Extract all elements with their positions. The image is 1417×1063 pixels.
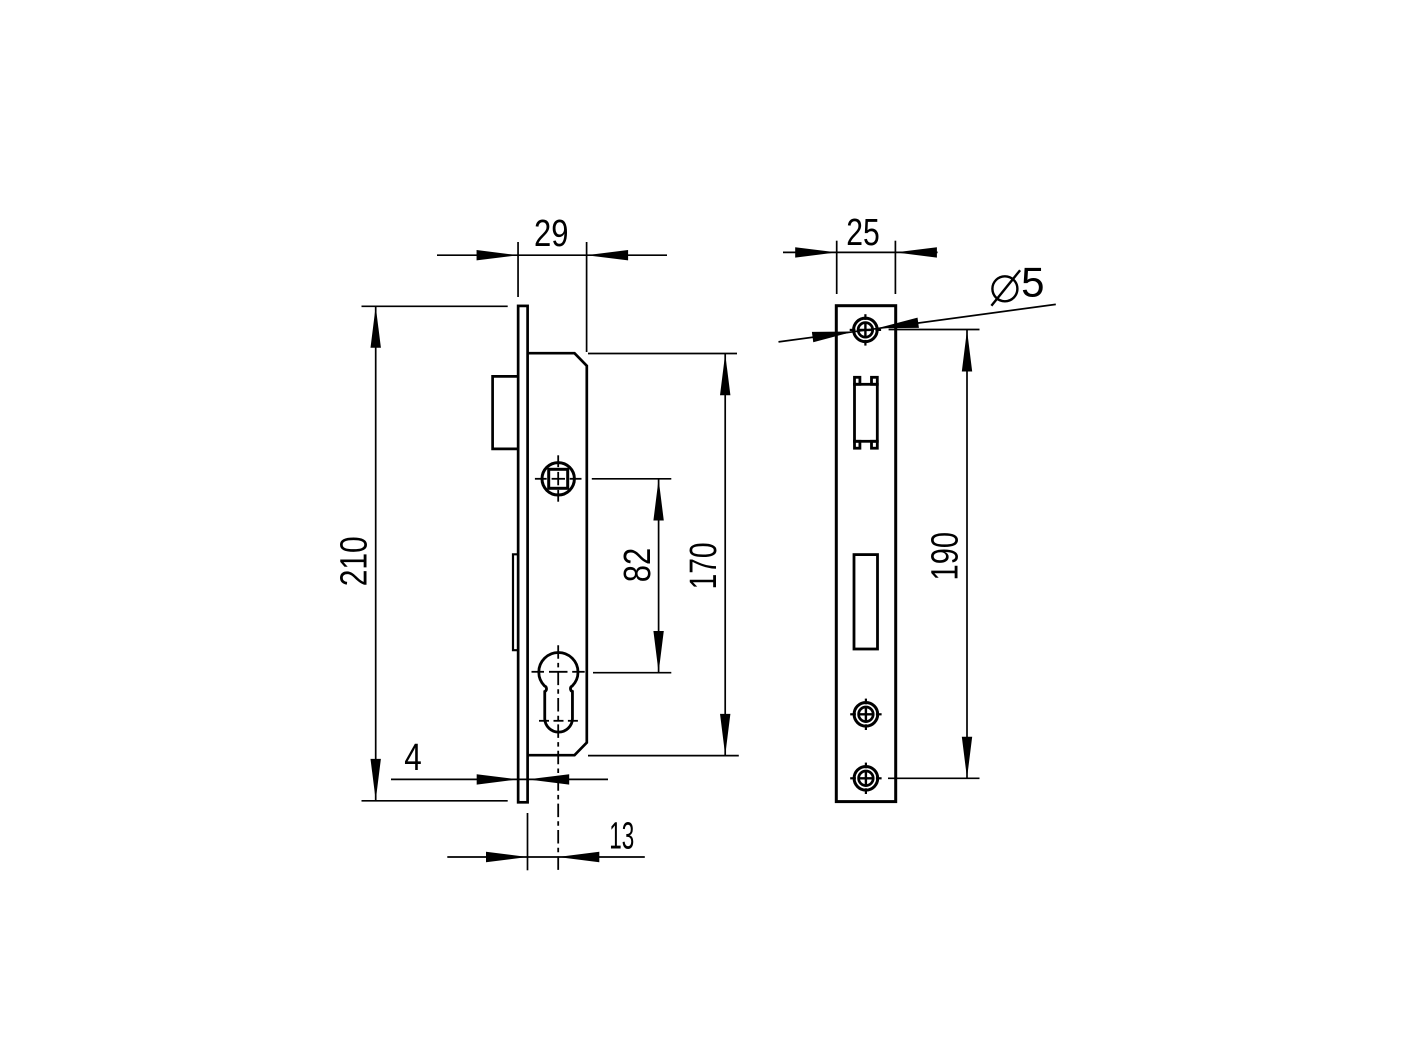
svg-text:4: 4 bbox=[404, 737, 422, 779]
svg-text:13: 13 bbox=[609, 816, 634, 858]
svg-text:210: 210 bbox=[334, 536, 376, 586]
svg-text:82: 82 bbox=[617, 548, 659, 583]
svg-text:29: 29 bbox=[534, 213, 569, 255]
svg-text:190: 190 bbox=[925, 532, 967, 581]
svg-text:170: 170 bbox=[683, 542, 725, 589]
svg-text:5: 5 bbox=[1021, 259, 1044, 306]
svg-text:25: 25 bbox=[846, 212, 880, 254]
